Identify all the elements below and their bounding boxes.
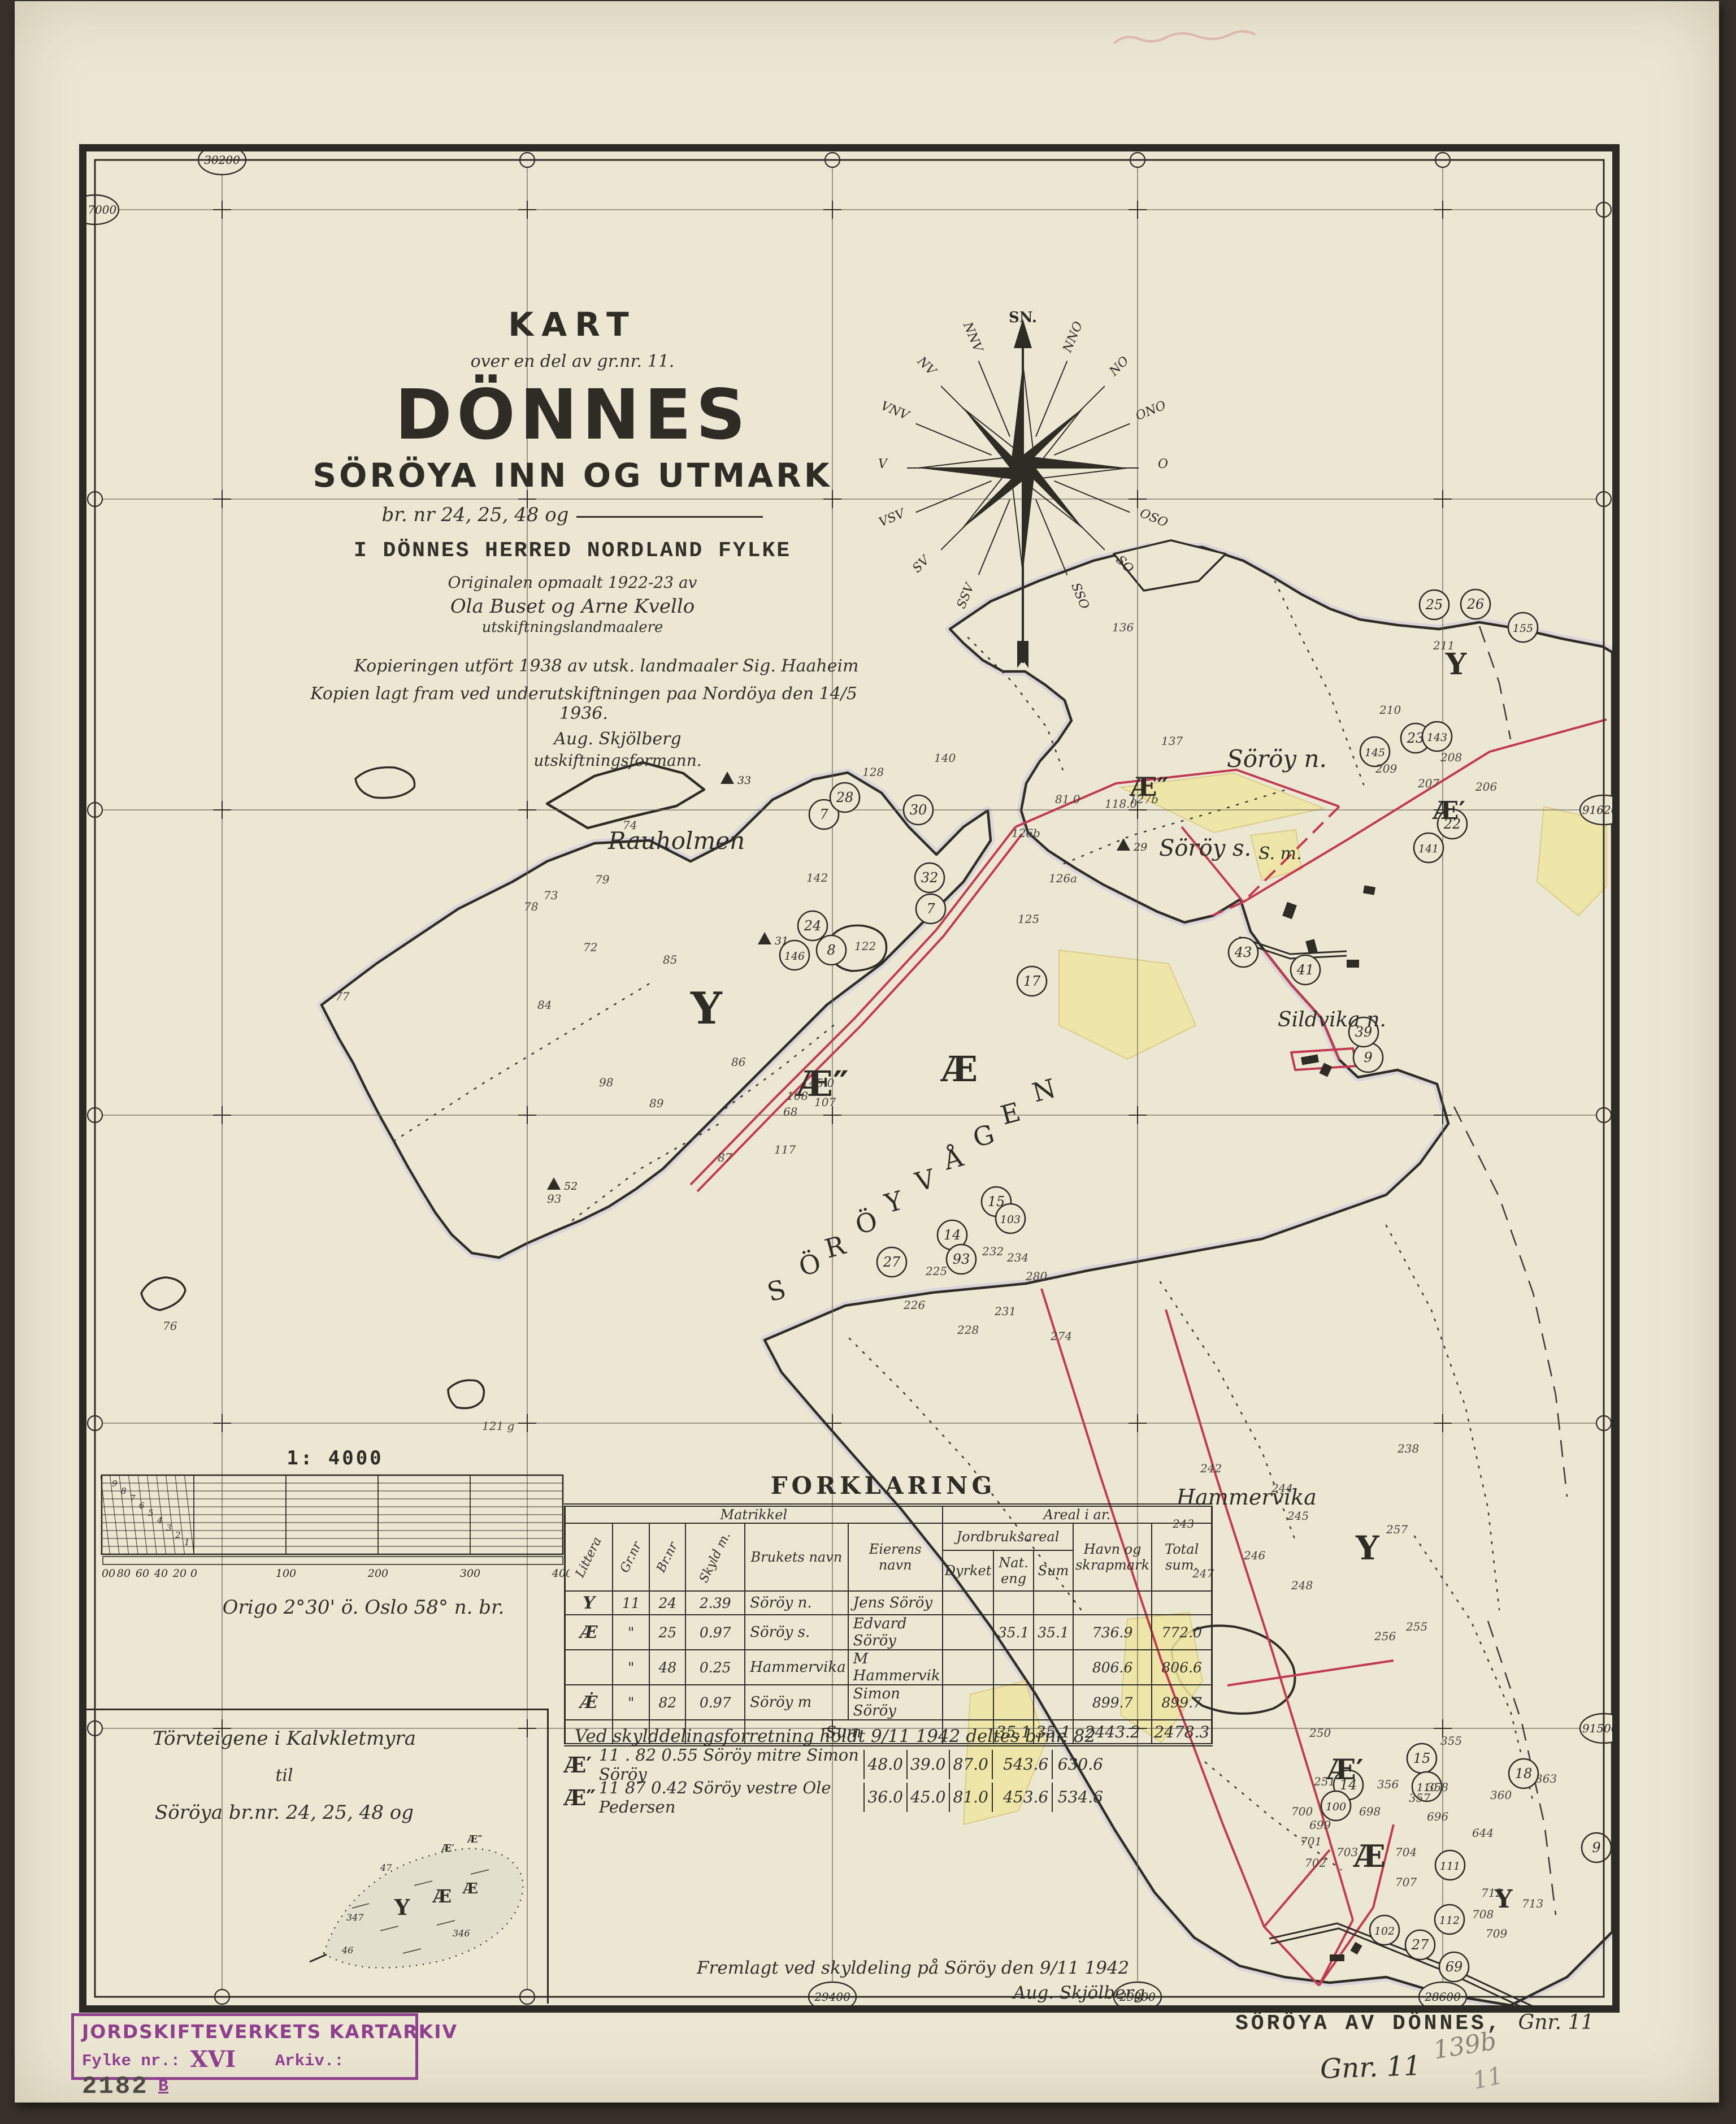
legend-title: FORKLARING	[736, 1472, 1030, 1499]
inset-number: 346	[453, 1928, 470, 1939]
title-subline1: over en del av gr.nr. 11.	[273, 352, 872, 371]
station-marker: 27	[1405, 1930, 1435, 1960]
islet-a	[141, 1277, 185, 1310]
svg-text:7: 7	[130, 1493, 136, 1503]
map-frame: SN.NNONOONOOOSOSOSSOSSVSVVSVVVNVNVNNV 72…	[79, 144, 1620, 2013]
parcel-number: 225	[925, 1264, 947, 1278]
copy-signature: Aug. Skjölberg	[363, 729, 872, 749]
station-marker: 27	[877, 1247, 906, 1277]
compass-point-label: SV	[910, 552, 933, 575]
svg-text:8: 8	[121, 1486, 127, 1496]
station-marker: 93	[947, 1245, 976, 1274]
svg-text:141: 141	[1418, 843, 1439, 855]
survey-note1: Originalen opmaalt 1922-23 av	[273, 573, 872, 592]
svg-text:6: 6	[139, 1501, 145, 1511]
svg-text:27: 27	[883, 1254, 901, 1270]
parcel-number: 246	[1243, 1549, 1265, 1562]
copy-note2: Kopien lagt fram ved underutskiftningen …	[296, 684, 872, 723]
inset-box: YÆÆÆ′Æ″ 4647346347 Törvteigene i Kalvkle…	[86, 1709, 549, 2004]
inset-letter: Y	[394, 1895, 410, 1920]
parcel-number: 257	[1386, 1523, 1408, 1536]
grid-coordinate: 29400	[809, 1982, 856, 2005]
map-label: Y	[690, 983, 723, 1034]
parcel-number: 248	[1291, 1579, 1313, 1592]
svg-text:145: 145	[1365, 747, 1385, 759]
presentation-signature: Aug. Skjölberg.	[1013, 1983, 1239, 2003]
parcel-number: 87	[718, 1151, 732, 1164]
scale-tick: 80	[117, 1567, 131, 1580]
stamp-title: JORDSKIFTEVERKETS KARTARKIV	[82, 2021, 407, 2043]
map-label: Æ′	[1326, 1753, 1364, 1786]
svg-text:917000: 917000	[86, 203, 116, 216]
svg-text:30: 30	[910, 802, 927, 818]
sheet-gnr: Gnr. 11	[1518, 2011, 1594, 2034]
parcel-number: 355	[1440, 1734, 1462, 1748]
svg-text:915000: 915000	[1582, 1722, 1612, 1735]
compass-point-label: ONO	[1134, 398, 1168, 423]
compass-north-label: SN.	[1009, 309, 1037, 326]
svg-text:1: 1	[184, 1537, 190, 1548]
map-label: S. m.	[1258, 844, 1302, 864]
skylddeling-row: Æ′11 . 82 0.55 Söröy mitre Simon Söröy 4…	[564, 1750, 1106, 1779]
triangulation-point: 33	[721, 771, 751, 787]
compass-point-label: VSV	[877, 506, 908, 530]
station-marker: 102	[1370, 1915, 1399, 1945]
parcel-number: 242	[1200, 1462, 1222, 1475]
svg-text:100: 100	[1326, 1801, 1346, 1813]
parcel-number: 238	[1397, 1442, 1419, 1455]
bruksnummer-line: br. nr 24, 25, 48 og	[273, 504, 872, 526]
map-kind-title: KART	[273, 305, 872, 344]
svg-text:33: 33	[737, 774, 751, 787]
parcel-number: 209	[1375, 762, 1397, 775]
parcel-number: 700	[1291, 1805, 1313, 1818]
parcel-number: 360	[1490, 1788, 1512, 1802]
station-marker: 111	[1435, 1850, 1465, 1880]
parcel-number: 255	[1405, 1620, 1427, 1633]
parcel-number: 117	[774, 1143, 796, 1156]
svg-text:29: 29	[1133, 841, 1147, 853]
inset-number: 347	[346, 1912, 364, 1923]
map-label: Söröy s.	[1159, 835, 1251, 861]
station-marker: 24	[798, 911, 827, 940]
parcel-number: 226	[903, 1298, 925, 1312]
svg-text:112: 112	[1439, 1914, 1460, 1927]
compass-point-label: V	[878, 457, 888, 471]
station-marker: 41	[1291, 955, 1320, 985]
map-label: Å	[940, 1141, 967, 1176]
arkiv-number: 2182	[82, 2073, 149, 2101]
parcel-number: 98	[599, 1076, 613, 1089]
compass-point-label: NNV	[960, 320, 986, 356]
scale-tick: 300	[460, 1567, 480, 1580]
forklaring-table: MatrikkelAreal i ar.Littera Gr.nr Br.nr …	[564, 1503, 1213, 1746]
parcel-number: 142	[806, 871, 828, 885]
parcel-number: 698	[1359, 1805, 1381, 1818]
parcel-number: 72	[583, 940, 597, 954]
parcel-number: 89	[649, 1096, 664, 1110]
station-marker: 9	[1582, 1833, 1611, 1862]
station-marker: 7	[916, 894, 945, 924]
parcel-number: 280	[1025, 1269, 1047, 1283]
islet-c	[355, 768, 415, 798]
parcel-number: 137	[1161, 734, 1183, 748]
copy-note1: Kopieringen utfört 1938 av utsk. landmaa…	[341, 656, 872, 676]
parcel-number: 79	[595, 873, 610, 886]
parcel-number: 356	[1377, 1778, 1399, 1791]
map-label: Sildvika n.	[1278, 1008, 1386, 1031]
grid-coordinate: 30200	[198, 151, 246, 175]
parcel-number: 126b	[1012, 826, 1040, 840]
station-marker: 100	[1321, 1791, 1351, 1820]
islet-b	[448, 1380, 484, 1408]
inset-letter: Æ″	[467, 1833, 483, 1845]
svg-text:14: 14	[944, 1227, 961, 1243]
station-marker: 155	[1508, 613, 1538, 642]
parcel-number: 85	[663, 953, 677, 966]
svg-text:9: 9	[1592, 1840, 1600, 1856]
inset-line3: Söröya br.nr. 24, 25, 48 og	[109, 1801, 459, 1824]
scale-tick: 60	[136, 1567, 149, 1580]
svg-text:18: 18	[1515, 1766, 1533, 1781]
station-marker: 32	[915, 863, 944, 892]
inset-letter: Æ	[432, 1885, 452, 1907]
map-label: Æ	[940, 1048, 978, 1090]
station-marker: 28	[830, 783, 860, 812]
parcel-number: 699	[1309, 1818, 1331, 1832]
compass-point-label: NO	[1106, 354, 1132, 379]
svg-text:3: 3	[166, 1523, 172, 1533]
map-label: E	[997, 1096, 1023, 1131]
parcel-number: 701	[1300, 1835, 1322, 1848]
map-label: Rauholmen	[607, 827, 745, 855]
skylddeling-note: Ved skylddelingsforretning holdt 9/11 19…	[564, 1726, 1106, 1746]
svg-text:25: 25	[1425, 597, 1443, 613]
parcel-number: 84	[537, 998, 552, 1012]
parcel-number: 232	[982, 1245, 1004, 1258]
station-marker: 8	[817, 935, 846, 965]
skylddeling-rows: Æ′11 . 82 0.55 Söröy mitre Simon Söröy 4…	[564, 1750, 1106, 1812]
map-label: Y	[1355, 1529, 1379, 1567]
fylke-value: XVI	[190, 2046, 236, 2073]
map-label: Y	[881, 1185, 906, 1219]
svg-text:103: 103	[1000, 1213, 1021, 1226]
pencil-number-11: 11	[1470, 2061, 1505, 2095]
station-marker: 143	[1422, 722, 1452, 751]
inset-line1: Törvteigene i Kalvkletmyra	[109, 1727, 459, 1750]
parcel-number: 228	[957, 1323, 979, 1337]
svg-text:916200: 916200	[1582, 803, 1612, 817]
map-label: Æ′	[1432, 796, 1465, 825]
compass-point-label: NNO	[1060, 319, 1086, 355]
compass-point-label: VNV	[879, 399, 912, 423]
inset-letter: Æ′	[441, 1843, 455, 1854]
parcel-number: 121 g	[482, 1419, 514, 1433]
parcel-number: 122	[854, 939, 876, 953]
scale-tick: 100	[276, 1567, 296, 1580]
skylddeling-section: Ved skylddelingsforretning holdt 9/11 19…	[564, 1726, 1106, 1812]
svg-text:17: 17	[1023, 973, 1041, 989]
map-label: Ö	[852, 1205, 881, 1241]
compass-point-label: NV	[914, 354, 939, 379]
parcel-number: 709	[1486, 1927, 1507, 1940]
station-marker: 43	[1229, 938, 1258, 967]
parcel-number: 245	[1287, 1509, 1309, 1523]
scale-tick: 20	[172, 1567, 186, 1580]
station-marker: 30	[904, 795, 933, 825]
map-subtitle: SÖRÖYA INN OG UTMARK	[273, 456, 872, 495]
parcel-number: 708	[1472, 1908, 1494, 1921]
parcel-number: 644	[1472, 1826, 1494, 1840]
svg-text:7: 7	[926, 901, 935, 917]
parcel-number: 707	[1395, 1875, 1417, 1889]
herred-line: I DÖNNES HERRED NORDLAND FYLKE	[273, 539, 872, 563]
parcel-number: 234	[1006, 1251, 1028, 1264]
svg-text:28: 28	[836, 790, 854, 805]
map-label: V	[912, 1163, 939, 1198]
parcel-number: 81.0	[1055, 792, 1080, 806]
svg-text:9: 9	[112, 1479, 118, 1489]
scale-tick: 100	[101, 1567, 115, 1580]
station-marker: 9	[1353, 1043, 1383, 1072]
map-label: R	[822, 1229, 849, 1264]
parcel-number: 702	[1305, 1856, 1326, 1870]
compass-point-label: O	[1158, 457, 1168, 471]
parcel-number: 274	[1050, 1329, 1072, 1343]
compass-point-label: SSV	[954, 580, 978, 611]
inset-caption: Törvteigene i Kalvkletmyra til Söröya br…	[109, 1710, 459, 1824]
map-main-title: DÖNNES	[273, 375, 872, 455]
map-label: S	[764, 1273, 789, 1307]
parcel-number: 93	[547, 1192, 561, 1206]
parcel-number: 207	[1417, 777, 1439, 790]
station-marker: 17	[1017, 966, 1047, 996]
svg-text:9: 9	[1364, 1050, 1372, 1065]
parcel-number: 704	[1395, 1845, 1417, 1859]
svg-text:15: 15	[1413, 1750, 1431, 1766]
map-label: Y	[1494, 1885, 1513, 1914]
skylddeling-row: Æ″11 87 0.42 Söröy vestre Ole Pedersen 3…	[564, 1783, 1106, 1812]
svg-text:2: 2	[175, 1530, 181, 1540]
fylke-label: Fylke nr.:	[82, 2052, 180, 2070]
parcel-number: 696	[1427, 1810, 1448, 1823]
parcel-number: 77	[335, 990, 350, 1003]
svg-text:146: 146	[784, 950, 805, 963]
svg-text:31: 31	[775, 935, 788, 947]
title-block: KART over en del av gr.nr. 11. DÖNNES SÖ…	[273, 305, 872, 770]
parcel-number: 250	[1309, 1726, 1331, 1740]
station-marker: 15	[1407, 1744, 1436, 1773]
inset-line2: til	[109, 1766, 459, 1785]
svg-text:5: 5	[148, 1508, 154, 1518]
svg-text:41: 41	[1296, 962, 1314, 978]
parcel-number: 78	[524, 900, 538, 913]
svg-text:24: 24	[804, 918, 822, 934]
map-label: Æ″	[796, 1063, 849, 1104]
scale-ratio: 1: 4000	[101, 1447, 570, 1470]
svg-text:4: 4	[157, 1515, 163, 1525]
arkiv-suffix: B	[158, 2077, 168, 2096]
svg-text:43: 43	[1234, 944, 1252, 960]
station-marker: 18	[1509, 1759, 1538, 1788]
svg-text:93: 93	[953, 1251, 970, 1267]
svg-text:143: 143	[1427, 731, 1447, 744]
inset-number: 46	[341, 1945, 353, 1956]
copy-signature-role: utskiftningsformann.	[363, 751, 872, 770]
archive-stamp: JORDSKIFTEVERKETS KARTARKIV Fylke nr.: X…	[71, 2013, 418, 2080]
parcel-number: 206	[1475, 780, 1497, 794]
compass-point-label: OSO	[1138, 506, 1170, 531]
map-label: Æ″	[1129, 771, 1169, 802]
svg-text:26: 26	[1466, 596, 1485, 612]
parcel-number: 125	[1018, 912, 1039, 926]
map-label: N	[1029, 1073, 1059, 1108]
svg-text:27: 27	[1411, 1937, 1429, 1953]
parcel-number: 713	[1522, 1897, 1543, 1910]
svg-text:52: 52	[564, 1180, 578, 1193]
station-marker: 69	[1439, 1952, 1469, 1982]
svg-text:23: 23	[1407, 730, 1425, 746]
scale-tick: 0	[190, 1567, 197, 1580]
parcel-number: 136	[1112, 621, 1134, 634]
parcel-number: 363	[1535, 1772, 1557, 1785]
svg-text:69: 69	[1446, 1959, 1463, 1975]
map-label: Æ	[1353, 1838, 1386, 1874]
map-label: Söröy n.	[1227, 745, 1327, 773]
parcel-number: 68	[783, 1105, 797, 1119]
grid-coordinate: 28600	[1419, 1982, 1466, 2005]
stamp-detail: Fylke nr.: XVI Arkiv.: 2182 B	[82, 2046, 407, 2101]
parcel-number: 86	[731, 1055, 746, 1069]
station-marker: 26	[1461, 589, 1490, 619]
map-label: G	[970, 1119, 997, 1154]
arkiv-label: Arkiv.:	[275, 2052, 344, 2070]
parcel-number: 140	[934, 751, 956, 765]
parcel-number: 231	[994, 1304, 1016, 1318]
map-label: Y	[1445, 647, 1467, 682]
scale-bar: 100806040200100200300400987654321	[101, 1468, 570, 1587]
station-marker: 141	[1414, 833, 1443, 862]
parcel-number: 210	[1379, 703, 1401, 717]
map-label: Ö	[796, 1247, 824, 1282]
parcel-number: 357	[1409, 1791, 1430, 1805]
handwritten-gnr: Gnr. 11	[1320, 2050, 1421, 2085]
parcel-number: 76	[163, 1319, 177, 1333]
svg-text:7: 7	[819, 807, 828, 822]
surveyor-role: utskiftningslandmaalere	[273, 619, 872, 636]
parcel-number: 256	[1374, 1629, 1396, 1643]
svg-text:155: 155	[1513, 622, 1533, 635]
svg-text:102: 102	[1374, 1925, 1395, 1937]
scale-tick: 40	[154, 1567, 168, 1580]
map-sheet: SN.NNONOONOOOSOSOSSOSSVSVVSVVVNVNVNNV 72…	[15, 1, 1719, 2103]
station-marker: 103	[996, 1204, 1025, 1233]
station-marker: 25	[1420, 590, 1449, 619]
svg-text:8: 8	[827, 942, 835, 958]
faint-red-mark	[1111, 24, 1258, 58]
scale-tick: 200	[367, 1567, 388, 1580]
svg-text:32: 32	[921, 870, 939, 886]
parcel-number: 208	[1440, 751, 1462, 764]
svg-text:111: 111	[1440, 1860, 1460, 1872]
parcel-number: 126a	[1049, 872, 1077, 885]
station-marker: 112	[1435, 1905, 1464, 1934]
presentation-note: Fremlagt ved skyldeling på Söröy den 9/1…	[697, 1958, 1205, 1978]
parcel-number: 73	[544, 888, 558, 902]
surveyors: Ola Buset og Arne Kvello	[273, 595, 872, 618]
legend-table: MatrikkelAreal i ar.Littera Gr.nr Br.nr …	[564, 1503, 1095, 1746]
inset-number: 47	[380, 1862, 392, 1873]
inset-letter: Æ	[462, 1880, 478, 1897]
origin-note: Origo 2°30' ö. Oslo 58° n. br.	[149, 1596, 578, 1619]
blank-rule	[576, 516, 763, 518]
grid-coordinate: 917000	[86, 195, 119, 224]
